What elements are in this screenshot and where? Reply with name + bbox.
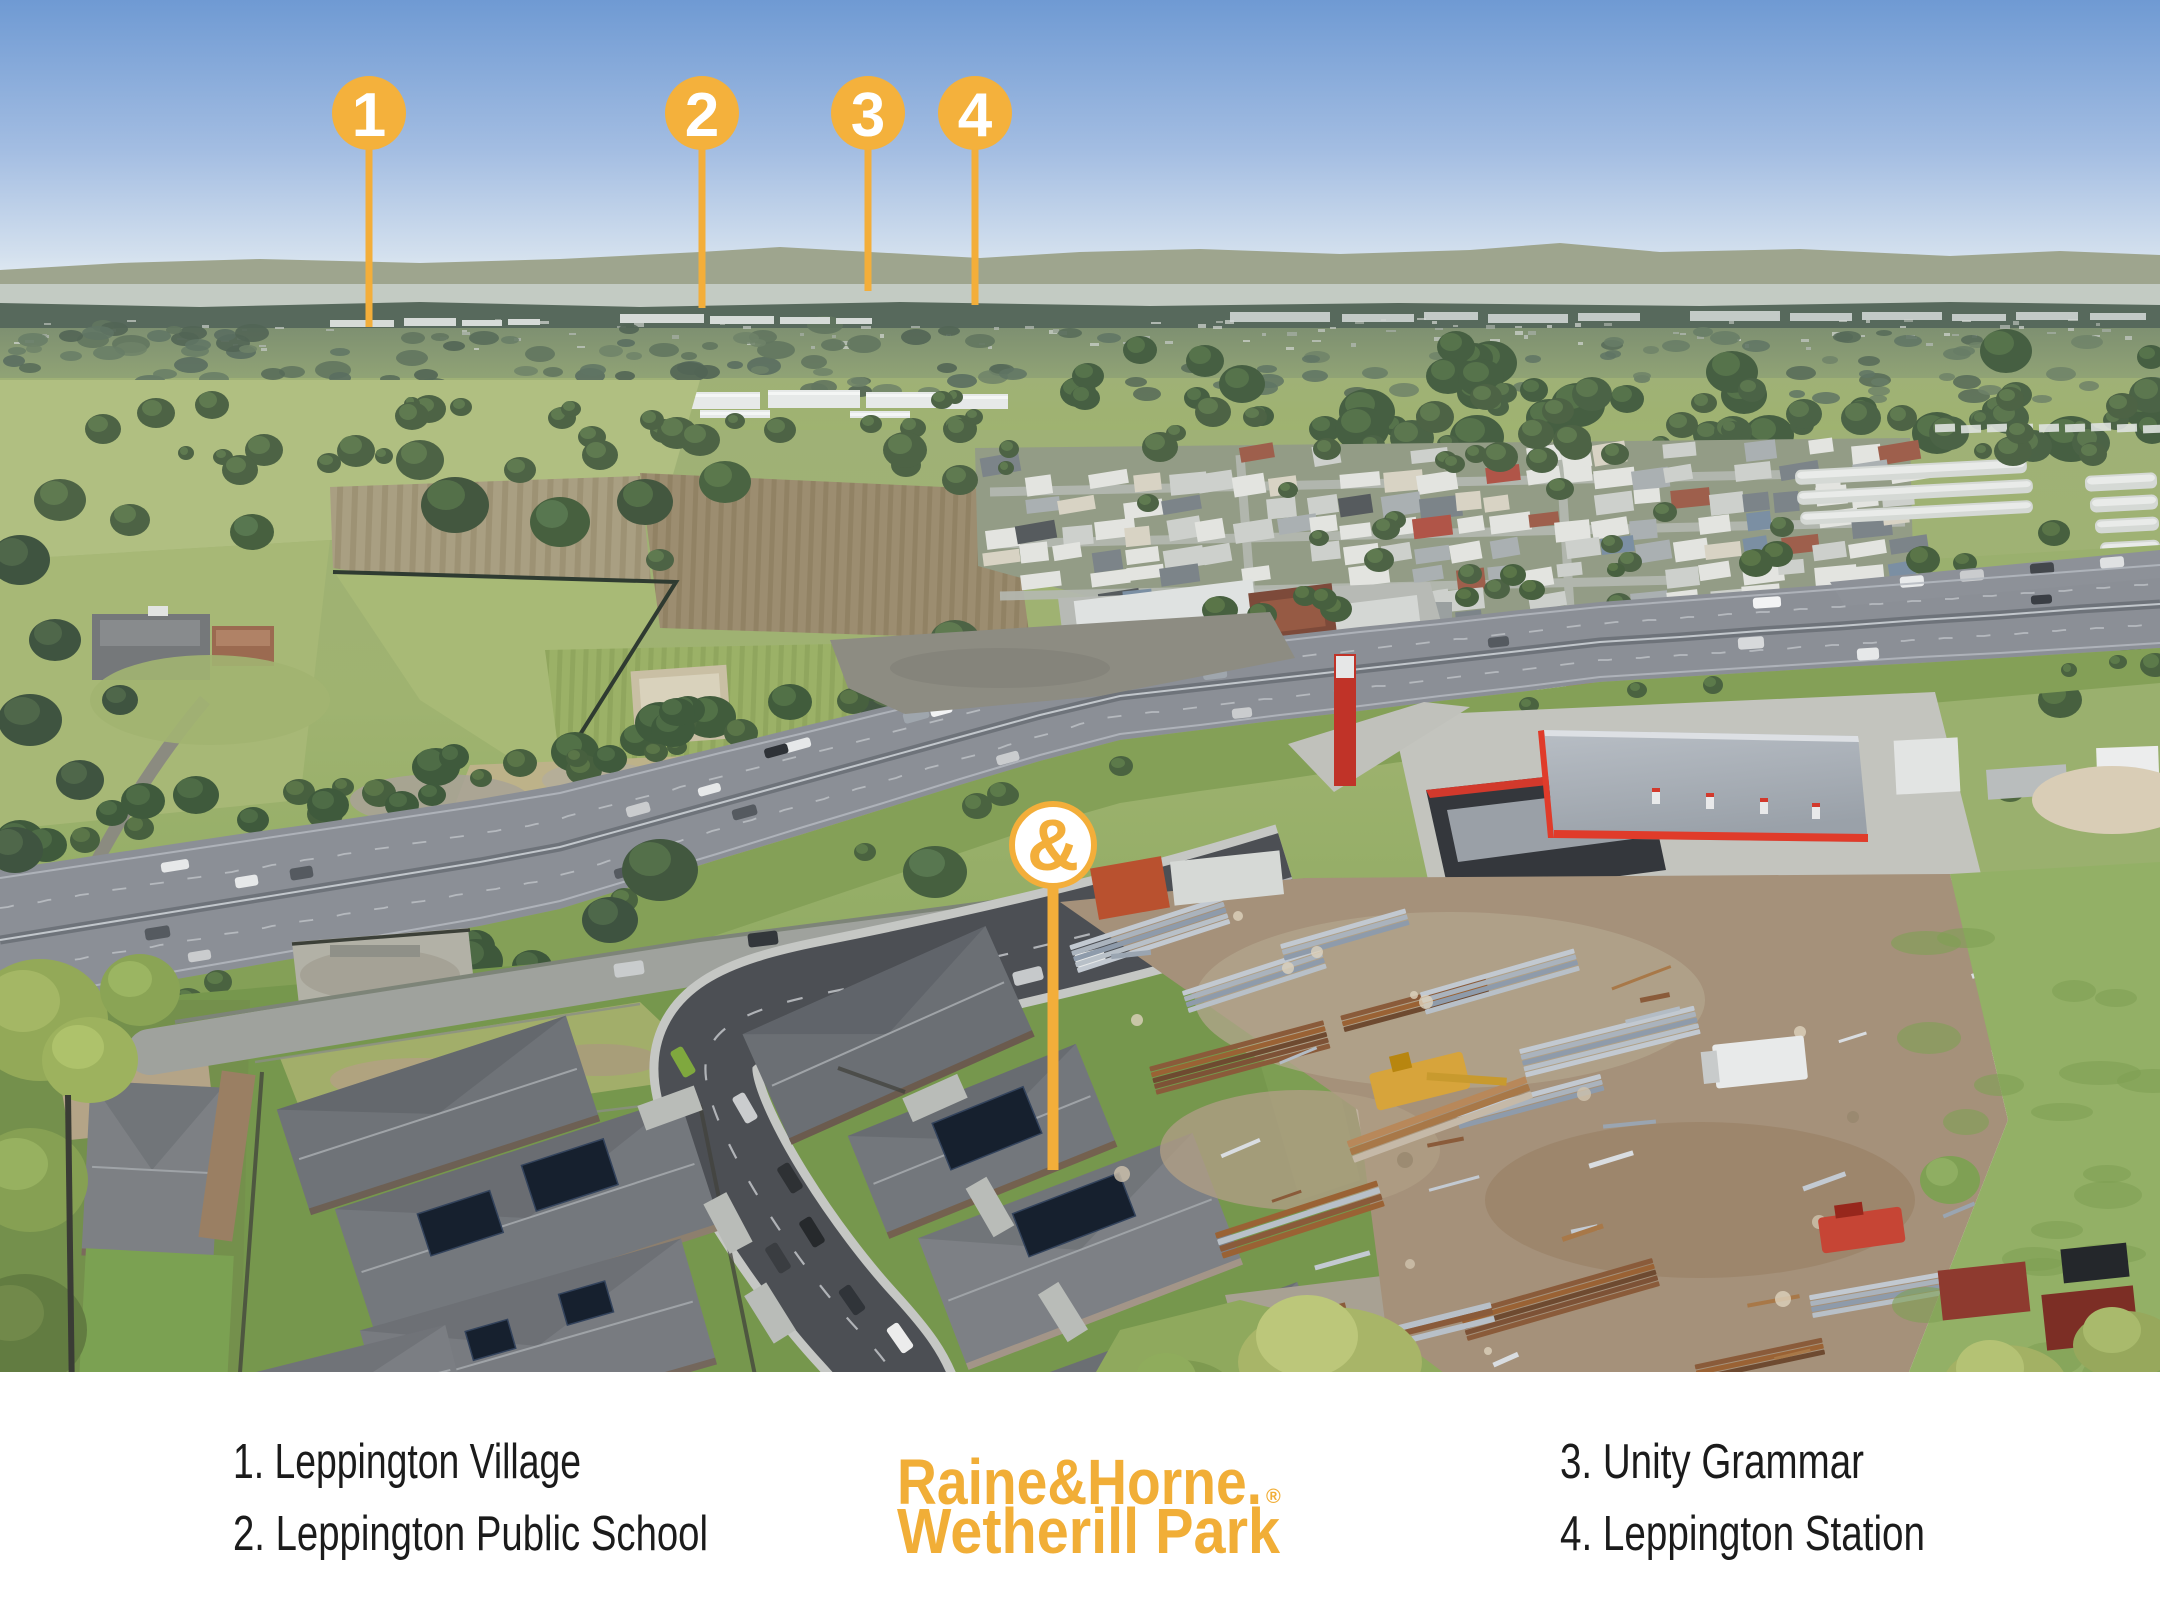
- svg-text:3. Unity Grammar: 3. Unity Grammar: [1560, 1435, 1864, 1489]
- svg-text:2: 2: [685, 81, 719, 150]
- svg-text:4: 4: [958, 81, 993, 150]
- svg-text:4. Leppington Station: 4. Leppington Station: [1560, 1507, 1925, 1561]
- svg-text:2. Leppington Public School: 2. Leppington Public School: [233, 1507, 708, 1561]
- svg-text:1: 1: [352, 81, 386, 150]
- svg-text:Wetherill Park: Wetherill Park: [897, 1495, 1280, 1567]
- svg-text:3: 3: [851, 81, 885, 150]
- svg-text:1. Leppington Village: 1. Leppington Village: [233, 1435, 581, 1489]
- svg-text:&: &: [1027, 806, 1079, 886]
